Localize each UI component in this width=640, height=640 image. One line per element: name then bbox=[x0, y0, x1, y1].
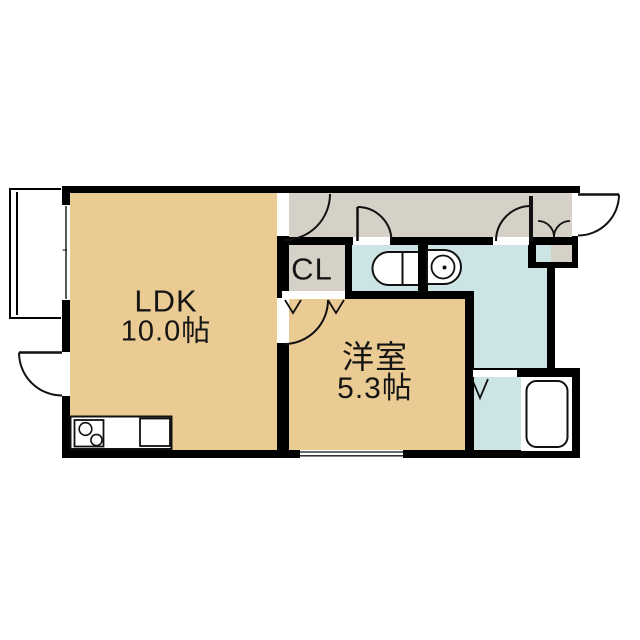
front-door-opening bbox=[572, 193, 578, 236]
toilet-door-opening bbox=[353, 237, 390, 245]
door-swing-arc-icon bbox=[578, 195, 619, 236]
hallway-entrance-floor bbox=[285, 190, 575, 241]
wall-closet-toilet bbox=[345, 243, 352, 295]
western-room-size: 5.3帖 bbox=[337, 374, 413, 404]
wall-washroom-right bbox=[547, 262, 555, 377]
wall-bathroom-right bbox=[572, 368, 580, 458]
bathroom-door-opening bbox=[473, 370, 517, 377]
washroom-door-opening bbox=[493, 237, 529, 245]
floor-plan: LDK 10.0帖 洋室 5.3帖 CL bbox=[0, 0, 640, 640]
washroom-lower-floor bbox=[469, 295, 551, 373]
ldk-western-room-door-opening bbox=[277, 298, 289, 343]
wall-top bbox=[62, 186, 580, 193]
ldk-hallway-door-opening bbox=[277, 193, 289, 236]
ldk-left-door-opening bbox=[62, 352, 70, 396]
ldk-room-name: LDK bbox=[134, 286, 197, 317]
balcony-icon bbox=[9, 188, 61, 319]
toilet-room-floor bbox=[348, 241, 423, 295]
western-room-name: 洋室 bbox=[342, 341, 408, 373]
balcony-railing-line bbox=[16, 192, 18, 315]
bathroom-floor bbox=[469, 373, 576, 455]
closet-label: CL bbox=[291, 254, 333, 285]
door-swing-arc-icon bbox=[19, 353, 62, 396]
closet-door-opening bbox=[282, 291, 345, 299]
wall-toilet-washroom bbox=[418, 243, 428, 295]
western-room-window-opening bbox=[300, 450, 403, 458]
ldk-balcony-window-opening bbox=[62, 205, 70, 300]
ldk-room-size: 10.0帖 bbox=[121, 318, 211, 347]
